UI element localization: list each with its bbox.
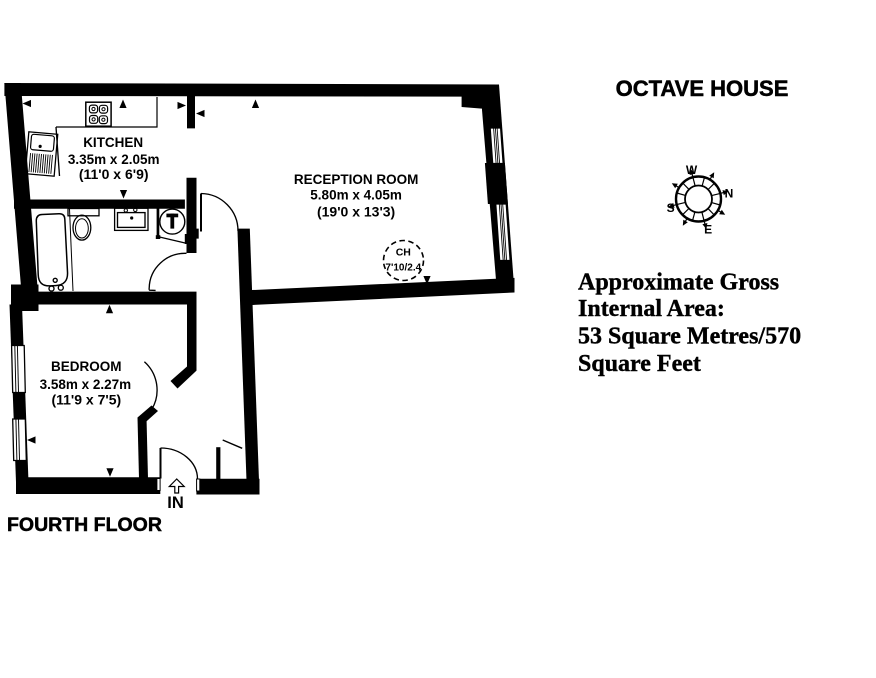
- svg-text:BEDROOM: BEDROOM: [51, 359, 122, 374]
- svg-text:(11'0 x 6'9): (11'0 x 6'9): [79, 166, 149, 182]
- svg-text:OCTAVE HOUSE: OCTAVE HOUSE: [616, 76, 789, 101]
- svg-text:E: E: [704, 223, 712, 237]
- svg-text:Square Feet: Square Feet: [578, 351, 701, 377]
- svg-text:RECEPTION ROOM: RECEPTION ROOM: [294, 172, 419, 187]
- svg-text:IN: IN: [167, 494, 184, 512]
- svg-text:FOURTH FLOOR: FOURTH FLOOR: [7, 514, 162, 536]
- svg-text:CH: CH: [396, 247, 411, 259]
- svg-text:N: N: [725, 187, 734, 201]
- svg-text:KITCHEN: KITCHEN: [83, 135, 143, 150]
- svg-text:7'10/2.4: 7'10/2.4: [385, 263, 421, 274]
- svg-text:(11'9 x 7'5): (11'9 x 7'5): [51, 392, 121, 408]
- svg-text:W: W: [686, 163, 698, 177]
- svg-text:5.80m x 4.05m: 5.80m x 4.05m: [310, 188, 402, 203]
- svg-text:Approximate Gross: Approximate Gross: [578, 270, 779, 296]
- svg-text:3.35m x 2.05m: 3.35m x 2.05m: [68, 152, 160, 167]
- svg-text:3.58m x 2.27m: 3.58m x 2.27m: [40, 377, 132, 392]
- svg-text:(19'0 x 13'3): (19'0 x 13'3): [317, 204, 395, 220]
- svg-text:S: S: [667, 201, 675, 215]
- svg-text:Internal Area:: Internal Area:: [578, 296, 725, 322]
- svg-text:53 Square Metres/570: 53 Square Metres/570: [578, 324, 801, 350]
